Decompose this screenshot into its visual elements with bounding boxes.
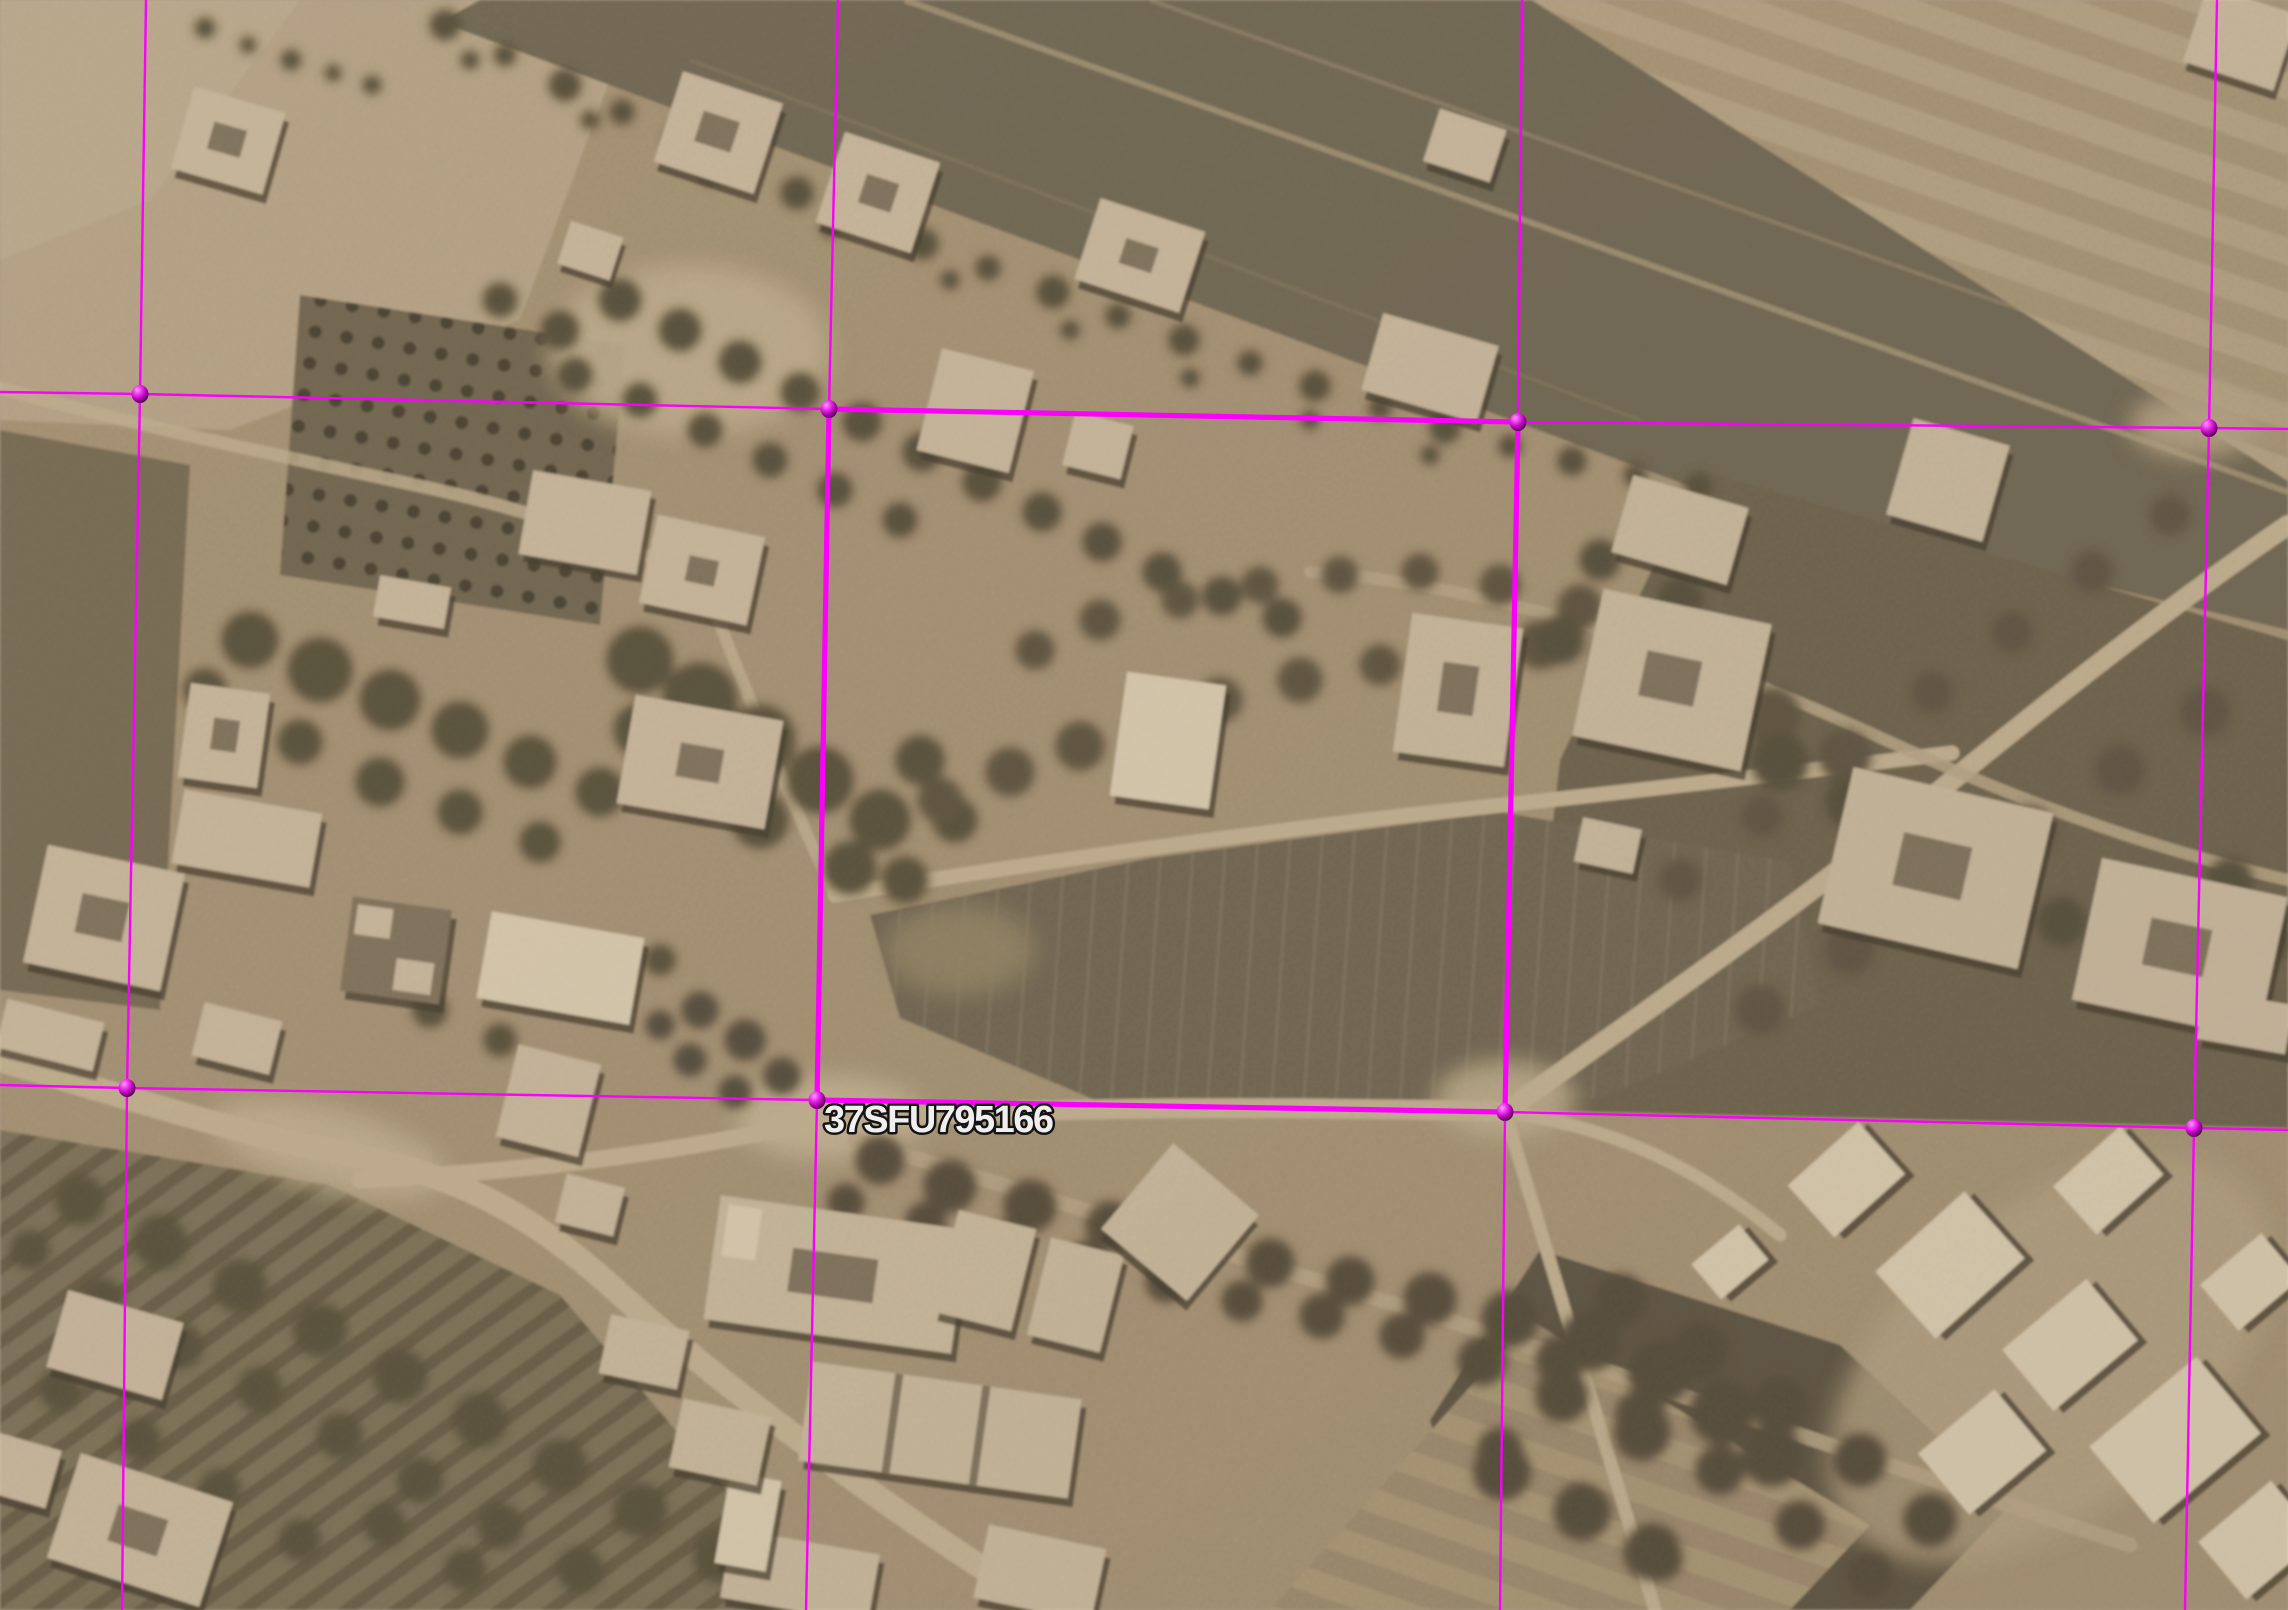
mgrs-grid-overlay: 37SFU795166 (0, 0, 2288, 1610)
mgrs-label: 37SFU795166 (824, 1099, 1053, 1141)
grid-lines (0, 0, 2288, 1610)
map-canvas[interactable]: 37SFU795166 (0, 0, 2288, 1610)
grid-intersection-nodes (119, 385, 2218, 1137)
